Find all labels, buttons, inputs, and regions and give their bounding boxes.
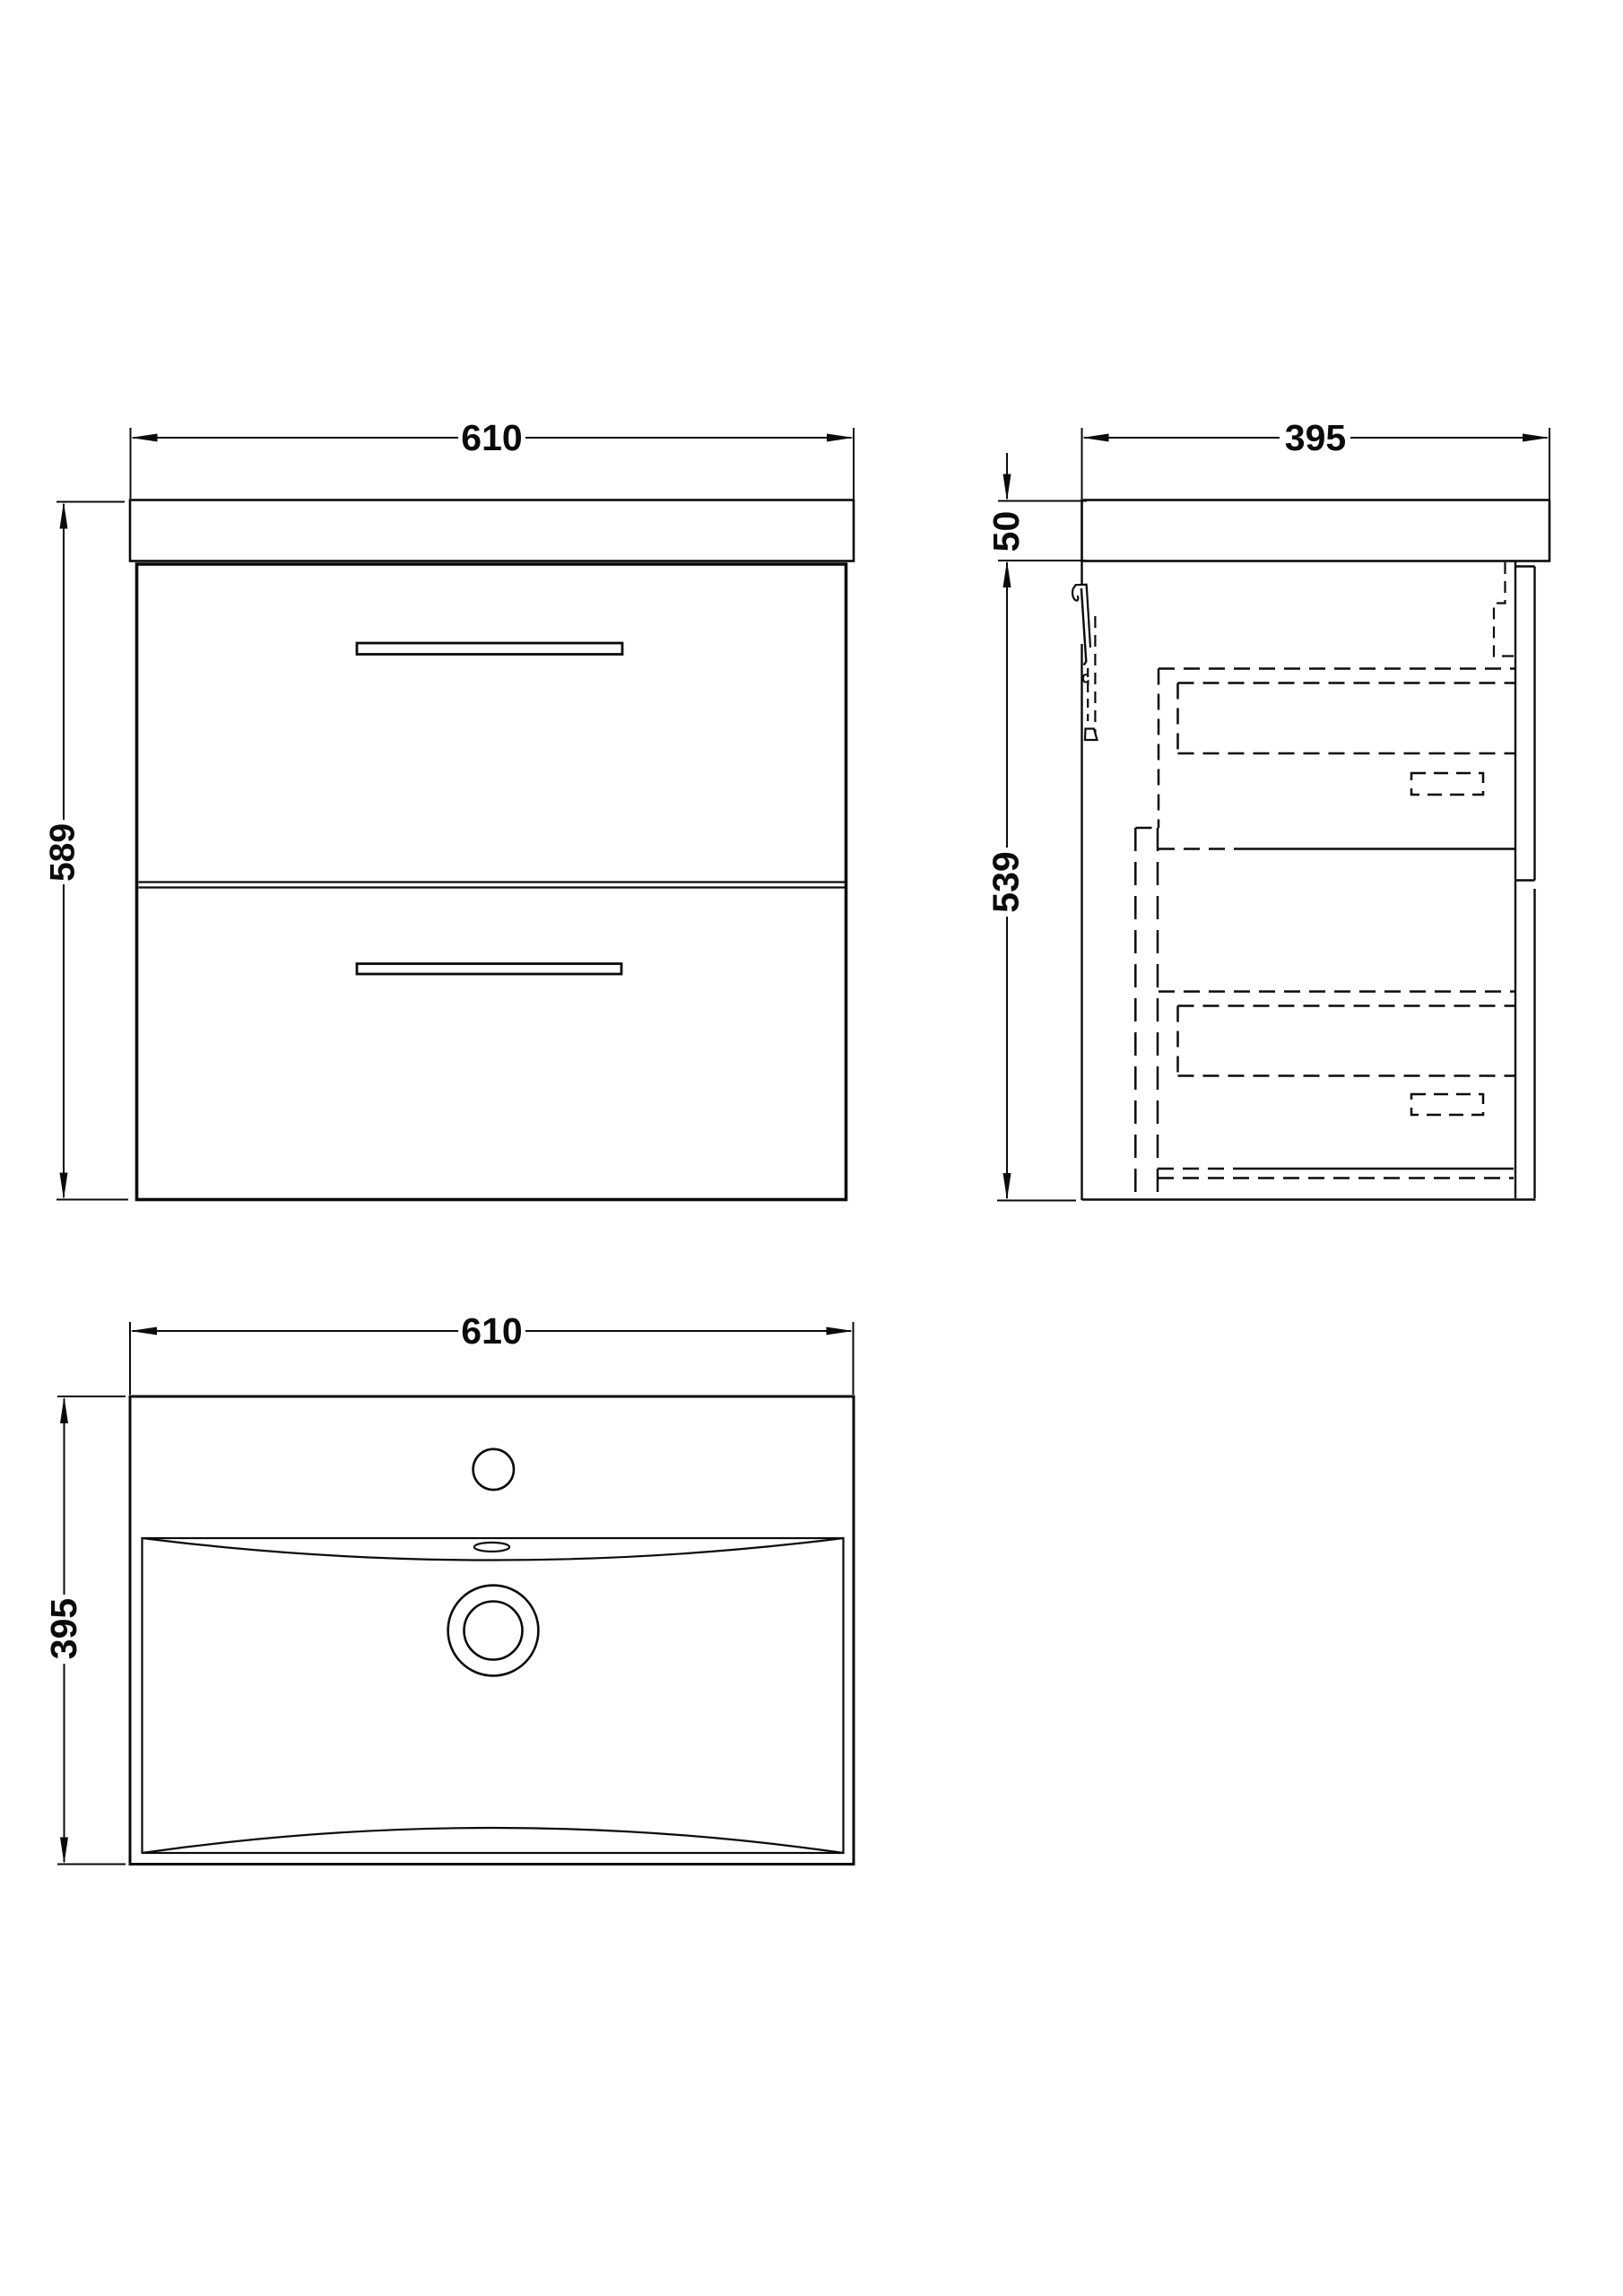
svg-text:395: 395 [1285, 417, 1346, 458]
svg-text:610: 610 [461, 1310, 522, 1352]
svg-text:610: 610 [461, 417, 522, 458]
svg-text:50: 50 [985, 511, 1027, 552]
svg-text:589: 589 [44, 823, 82, 882]
svg-text:539: 539 [985, 851, 1027, 912]
svg-text:395: 395 [43, 1598, 84, 1659]
